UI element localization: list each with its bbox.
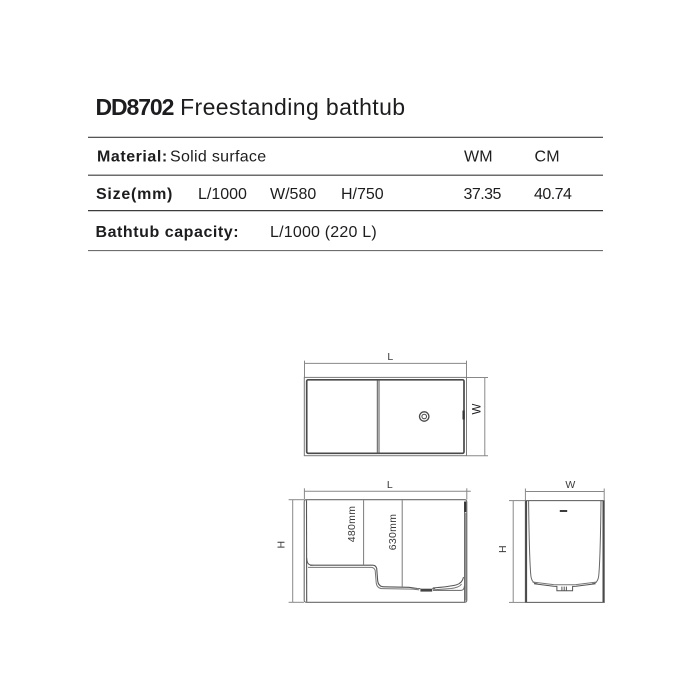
svg-text:H/750: H/750 [341,186,384,203]
svg-text:Material:: Material: [97,149,168,166]
svg-text:W: W [472,403,484,414]
svg-text:H: H [276,541,288,549]
svg-text:W/580: W/580 [270,186,316,203]
svg-text:37.35: 37.35 [464,186,502,203]
svg-text:Bathtub capacity:: Bathtub capacity: [96,224,240,241]
svg-text:W: W [565,479,575,491]
svg-text:WM: WM [464,149,493,166]
svg-text:CM: CM [535,149,560,166]
svg-text:DD8702 Freestanding bathtub: DD8702 Freestanding bathtub [96,94,406,120]
svg-text:Solid surface: Solid surface [170,149,266,166]
svg-text:L: L [387,479,393,491]
svg-text:L/1000: L/1000 [198,186,247,203]
svg-text:40.74: 40.74 [534,186,572,203]
svg-text:L: L [387,351,393,363]
svg-text:L/1000 (220 L): L/1000 (220 L) [270,224,377,241]
svg-text:H: H [497,545,509,553]
svg-text:Size(mm): Size(mm) [96,186,173,203]
svg-text:480mm: 480mm [346,506,358,543]
svg-text:630mm: 630mm [387,514,399,551]
